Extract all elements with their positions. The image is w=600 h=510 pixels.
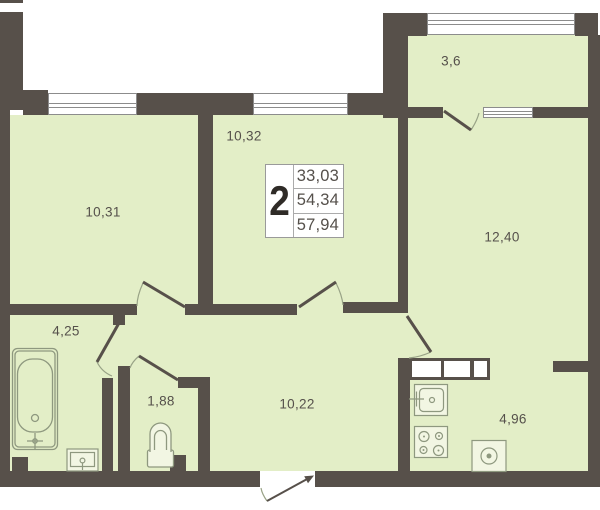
door-room-10-32 xyxy=(299,282,336,307)
door-kitchen xyxy=(407,316,431,352)
door-balcony xyxy=(444,111,471,130)
room-label-bathroom: 4,25 xyxy=(52,324,79,339)
door-wc xyxy=(139,356,178,380)
room-label-wc: 1,88 xyxy=(147,394,174,409)
washing-machine-icon xyxy=(472,441,506,472)
stove-icon xyxy=(415,427,448,458)
area-values: 33,03 54,34 57,94 xyxy=(294,165,343,237)
room-label-10-31: 10,31 xyxy=(85,205,120,220)
apartment-info-box: 2 33,03 54,34 57,94 xyxy=(265,164,344,238)
door-bathroom xyxy=(97,323,119,362)
room-label-12-40: 12,40 xyxy=(484,230,519,245)
sink-icon xyxy=(67,449,98,471)
room-label-10-32: 10,32 xyxy=(226,129,261,144)
toilet-icon xyxy=(148,423,174,467)
kitchen-sink-icon xyxy=(409,385,448,416)
door-room-10-31 xyxy=(143,282,185,307)
door-leaves xyxy=(97,111,471,380)
room-label-kitchen: 4,96 xyxy=(499,412,526,427)
room-count: 2 xyxy=(268,165,292,237)
bathtub-icon xyxy=(13,349,58,450)
entrance-arrow-icon xyxy=(267,476,314,502)
doors-and-fixtures-layer xyxy=(0,0,600,510)
room-label-balcony: 3,6 xyxy=(441,54,461,69)
floor-plan: 10,31 10,32 3,6 12,40 4,25 1,88 10,22 4,… xyxy=(0,0,600,510)
area-value-2: 54,34 xyxy=(294,188,343,212)
room-label-hallway: 10,22 xyxy=(279,397,314,412)
area-value-3: 57,94 xyxy=(294,213,343,237)
area-value-1: 33,03 xyxy=(294,165,343,188)
